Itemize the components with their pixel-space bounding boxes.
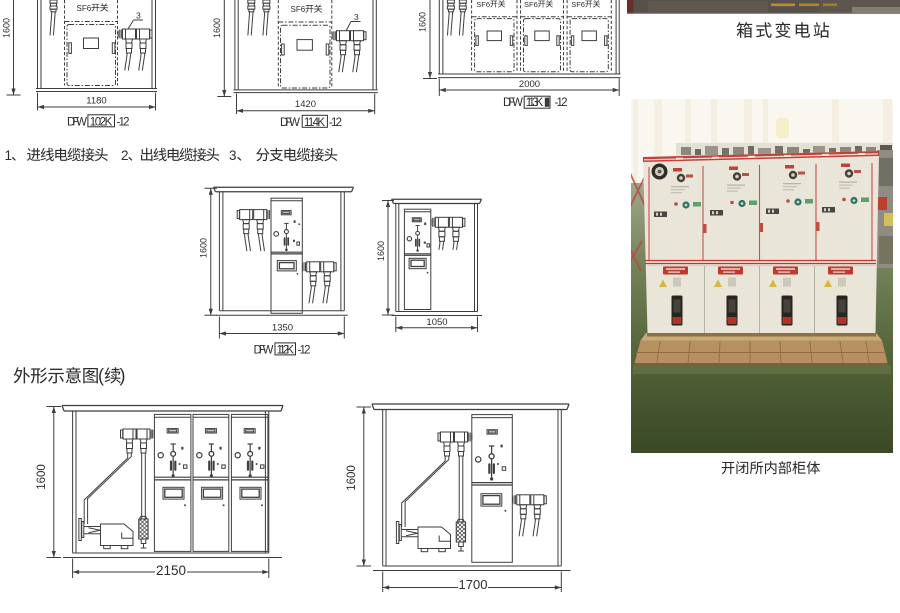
- svg-text:3: 3: [229, 148, 237, 163]
- svg-text:1700: 1700: [459, 577, 488, 592]
- svg-text:SF6: SF6: [571, 0, 585, 9]
- svg-text:1: 1: [5, 148, 13, 163]
- svg-text:1600: 1600: [376, 241, 386, 261]
- svg-text:2150: 2150: [156, 563, 186, 578]
- svg-text:1180: 1180: [86, 96, 106, 107]
- svg-text:-12: -12: [555, 97, 568, 109]
- svg-text:1600: 1600: [418, 12, 428, 32]
- svg-text:3: 3: [354, 12, 359, 22]
- svg-text:2000: 2000: [519, 79, 540, 90]
- svg-text:SF6: SF6: [77, 4, 92, 13]
- svg-text:1600: 1600: [36, 464, 48, 490]
- svg-text:1600: 1600: [199, 238, 209, 258]
- svg-text:DFW: DFW: [67, 117, 87, 129]
- svg-text:1050: 1050: [426, 317, 447, 328]
- svg-text:DFW: DFW: [280, 117, 300, 129]
- svg-text:DFW: DFW: [503, 97, 523, 109]
- svg-text:-12: -12: [117, 117, 130, 129]
- svg-text:3: 3: [136, 11, 141, 21]
- svg-text:1600: 1600: [2, 18, 12, 38]
- svg-text:-12: -12: [298, 345, 311, 357]
- svg-text:DFW: DFW: [254, 345, 274, 357]
- svg-text:SF6: SF6: [476, 0, 490, 9]
- svg-text:2: 2: [121, 148, 129, 163]
- svg-text:1600: 1600: [212, 18, 222, 38]
- svg-text:1350: 1350: [272, 323, 293, 334]
- svg-text:): ): [120, 366, 126, 386]
- svg-text:-12: -12: [329, 117, 342, 129]
- svg-text:1600: 1600: [346, 465, 358, 491]
- svg-text:SF6: SF6: [291, 5, 306, 14]
- svg-text:SF6: SF6: [524, 0, 538, 9]
- svg-text:1420: 1420: [295, 99, 316, 110]
- svg-text:113K: 113K: [526, 97, 544, 109]
- svg-text:(: (: [98, 366, 104, 386]
